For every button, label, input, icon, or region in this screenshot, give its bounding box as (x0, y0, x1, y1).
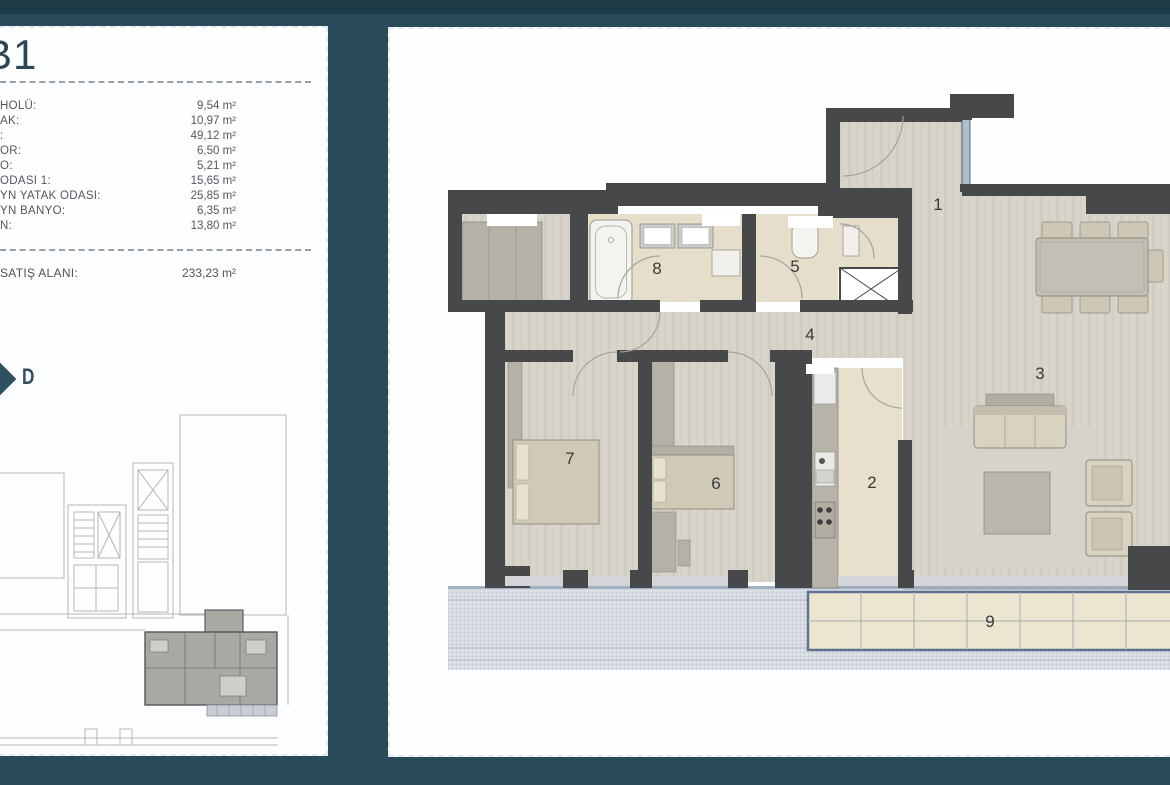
room-label-3: 3 (1035, 364, 1044, 383)
room-area: 49,12 m² (191, 130, 236, 142)
room-label: O: (0, 160, 13, 172)
room-label-6: 6 (711, 474, 720, 493)
room-label-1: 1 (933, 195, 942, 214)
room-label: N: (0, 220, 12, 232)
bath-cabinet (712, 250, 740, 276)
armchair (1086, 460, 1132, 506)
area-row: ODASI 1:15,65 m² (0, 175, 236, 189)
kitchen-counter (812, 368, 838, 588)
room-label-4: 4 (805, 325, 814, 344)
shower-tray (843, 226, 859, 256)
brochure-page: { "page": { "background": "#294b59", "to… (0, 0, 1170, 785)
bed (650, 446, 734, 509)
armchair (1086, 512, 1132, 556)
room-area: 9,54 m² (197, 100, 236, 112)
direction-letter: D (22, 364, 34, 390)
bed-master (513, 440, 599, 524)
total-value: 233,23 m² (182, 266, 236, 280)
room-label-9: 9 (985, 612, 994, 631)
page-top-strip (0, 0, 1170, 14)
room-area: 13,80 m² (191, 220, 236, 232)
sofa (974, 406, 1066, 448)
dining-table (1036, 238, 1148, 296)
room-label: ODASI 1: (0, 175, 51, 187)
room-label: YN BANYO: (0, 205, 65, 217)
room-label: HOLÜ: (0, 100, 37, 112)
bathtub (590, 220, 632, 304)
area-row: :49,12 m² (0, 130, 236, 144)
room-area: 25,85 m² (191, 190, 236, 202)
room-area: 5,21 m² (197, 160, 236, 172)
unit-title: B1 (0, 33, 37, 77)
room-label: : (0, 130, 4, 142)
room-label: OR: (0, 145, 21, 157)
wardrobe (462, 222, 542, 302)
room-label-7: 7 (565, 449, 574, 468)
tv-console (986, 394, 1054, 407)
floor-plan: 1 2 3 4 5 6 7 8 9 (388, 27, 1170, 757)
room-area: 6,35 m² (197, 205, 236, 217)
separator-line (0, 81, 311, 83)
key-plan-highlighted-unit (145, 610, 277, 716)
separator-line (0, 249, 311, 251)
nightstand (650, 512, 676, 572)
balcony-strip (448, 586, 1170, 670)
cooktop (815, 502, 835, 538)
room-label: AK: (0, 115, 19, 127)
area-row: YN YATAK ODASI:25,85 m² (0, 190, 236, 204)
room-label-5: 5 (790, 257, 799, 276)
area-row: AK:10,97 m² (0, 115, 236, 129)
room-label-8: 8 (652, 259, 661, 278)
room-label-2: 2 (867, 473, 876, 492)
total-label: SATIŞ ALANI: (0, 266, 78, 280)
area-row: OR:6,50 m² (0, 145, 236, 159)
wardrobe (652, 360, 674, 454)
room-area: 15,65 m² (191, 175, 236, 187)
area-row: N:13,80 m² (0, 220, 236, 234)
area-row: HOLÜ:9,54 m² (0, 100, 236, 114)
desk (678, 540, 690, 566)
room-area: 10,97 m² (191, 115, 236, 127)
room-area: 6,50 m² (197, 145, 236, 157)
fridge (814, 372, 836, 404)
area-row: YN BANYO:6,35 m² (0, 205, 236, 219)
key-plan (0, 410, 300, 755)
entry-glazing (960, 112, 972, 192)
room-label: YN YATAK ODASI: (0, 190, 101, 202)
area-row: O:5,21 m² (0, 160, 236, 174)
dining-set (1036, 222, 1163, 313)
coffee-table (984, 472, 1050, 534)
